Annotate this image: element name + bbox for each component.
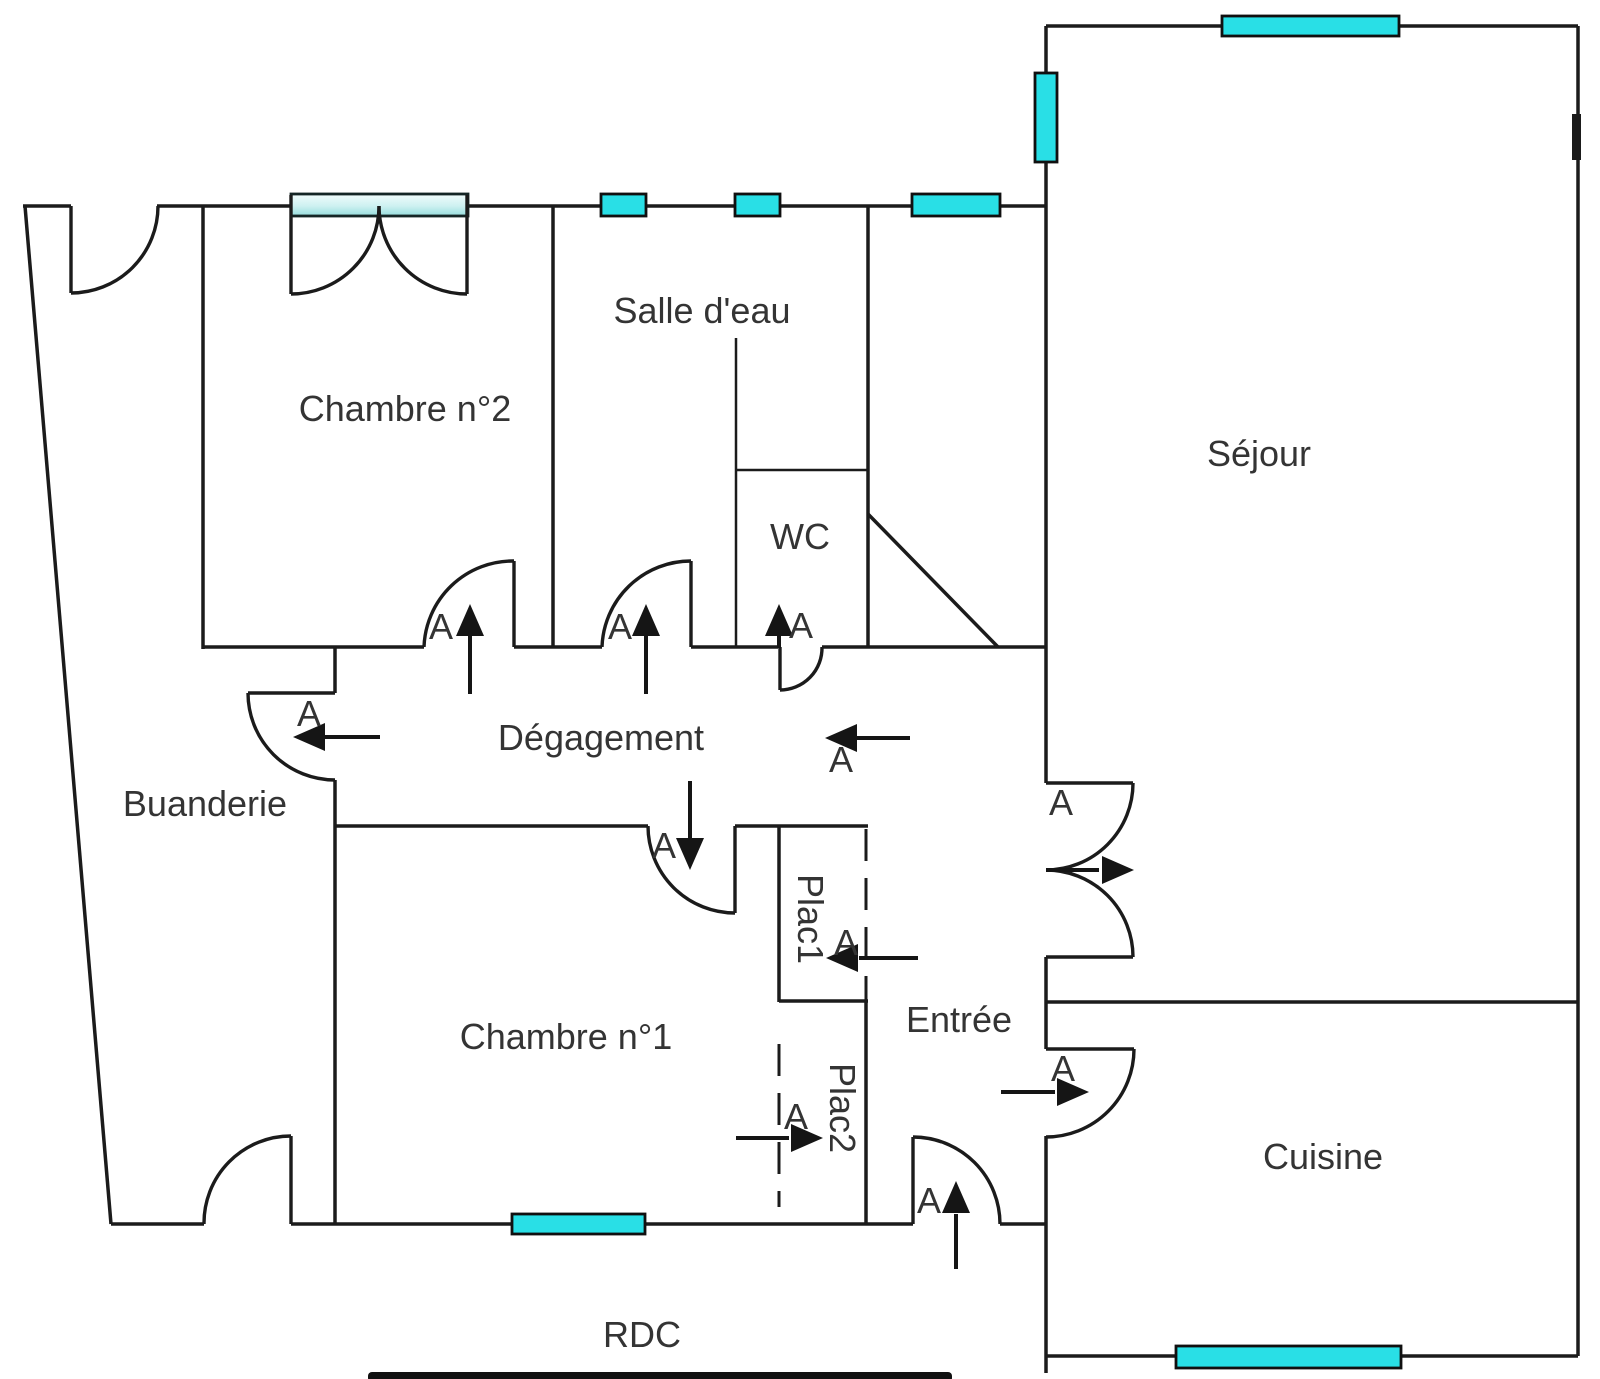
svg-text:A: A bbox=[829, 739, 853, 780]
svg-text:Dégagement: Dégagement bbox=[498, 717, 704, 758]
svg-text:A: A bbox=[917, 1180, 941, 1221]
svg-text:Séjour: Séjour bbox=[1207, 433, 1311, 474]
svg-text:A: A bbox=[608, 606, 632, 647]
svg-text:Cuisine: Cuisine bbox=[1263, 1136, 1383, 1177]
svg-text:Plac2: Plac2 bbox=[822, 1063, 863, 1153]
svg-text:Chambre n°1: Chambre n°1 bbox=[460, 1016, 673, 1057]
svg-text:A: A bbox=[834, 922, 858, 963]
svg-text:A: A bbox=[1049, 782, 1073, 823]
svg-text:A: A bbox=[652, 825, 676, 866]
svg-text:Entrée: Entrée bbox=[906, 999, 1012, 1040]
svg-text:A: A bbox=[297, 693, 321, 734]
svg-text:A: A bbox=[429, 606, 453, 647]
svg-text:A: A bbox=[789, 605, 813, 646]
svg-text:RDC: RDC bbox=[603, 1314, 681, 1355]
svg-text:WC: WC bbox=[770, 516, 830, 557]
svg-text:Salle d'eau: Salle d'eau bbox=[613, 290, 790, 331]
svg-text:Plac1: Plac1 bbox=[790, 874, 831, 964]
svg-text:Buanderie: Buanderie bbox=[123, 783, 287, 824]
svg-text:Chambre n°2: Chambre n°2 bbox=[299, 388, 512, 429]
svg-text:A: A bbox=[784, 1096, 808, 1137]
svg-text:A: A bbox=[1051, 1048, 1075, 1089]
